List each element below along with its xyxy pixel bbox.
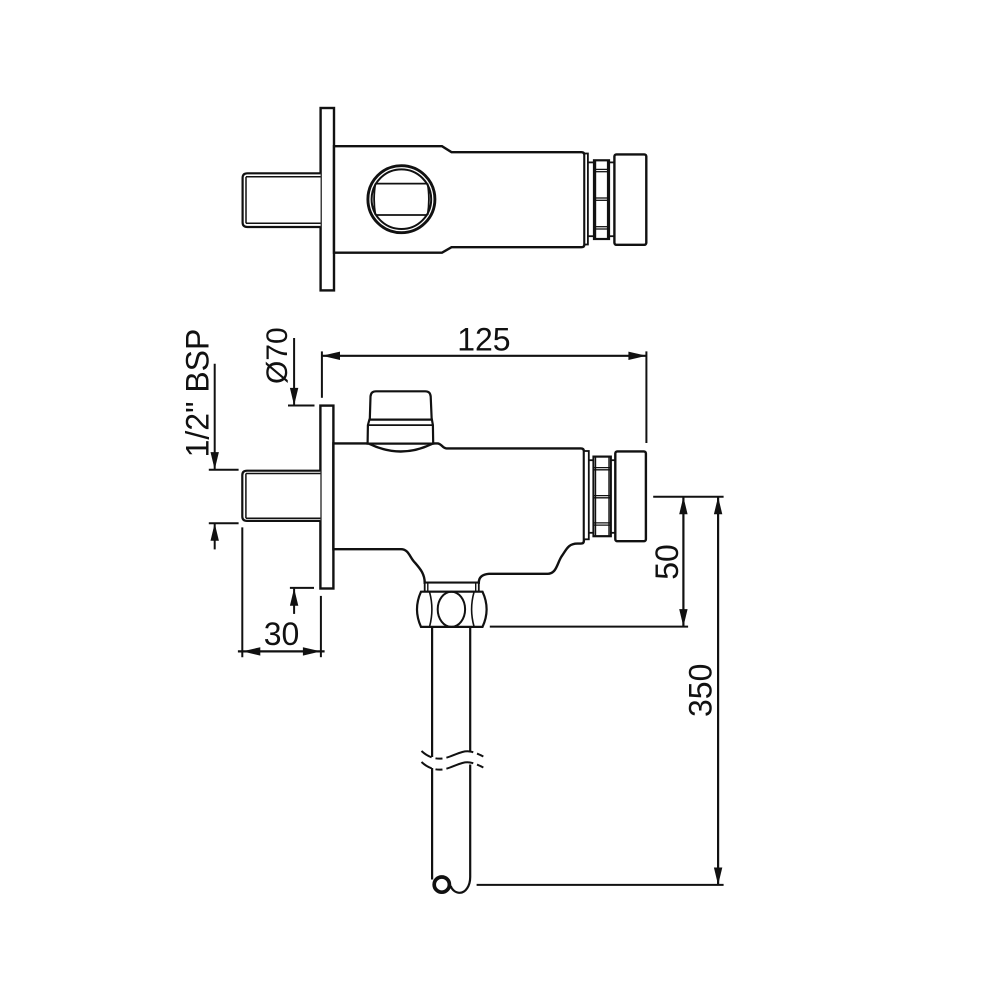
svg-text:Ø70: Ø70: [261, 327, 294, 384]
svg-text:125: 125: [457, 322, 510, 358]
svg-text:50: 50: [649, 544, 685, 580]
svg-text:1/2" BSP: 1/2" BSP: [179, 329, 215, 458]
svg-text:30: 30: [264, 616, 300, 652]
svg-text:350: 350: [683, 664, 719, 717]
